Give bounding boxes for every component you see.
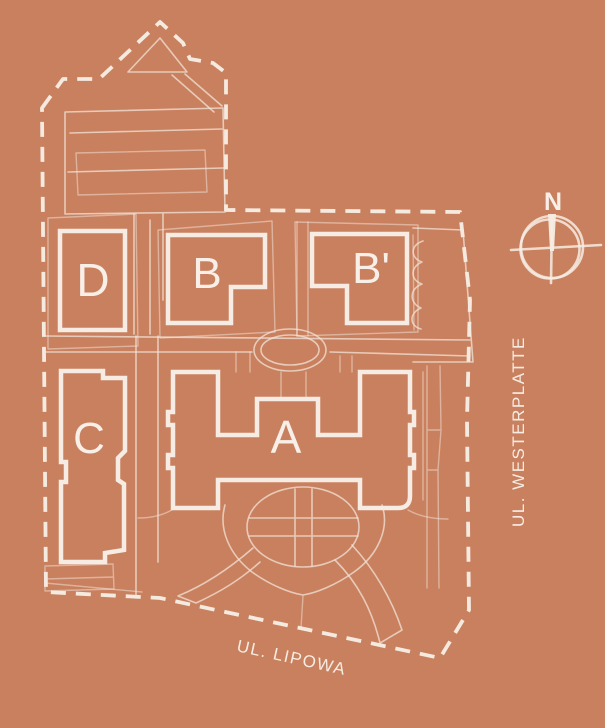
building-b-prime-label: B'	[352, 244, 390, 293]
compass-north-label: N	[544, 188, 562, 216]
site-plan-map: D B B' C A UL. WESTERPLATTE UL. LIPOWA N	[0, 0, 605, 728]
site-plan-page: D B B' C A UL. WESTERPLATTE UL. LIPOWA N	[0, 0, 605, 728]
building-d-label: D	[76, 254, 109, 306]
building-a-label: A	[271, 411, 302, 463]
street-label-westerplatte: UL. WESTERPLATTE	[509, 336, 528, 527]
building-c-label: C	[73, 414, 105, 463]
building-b-label: B	[192, 249, 221, 298]
